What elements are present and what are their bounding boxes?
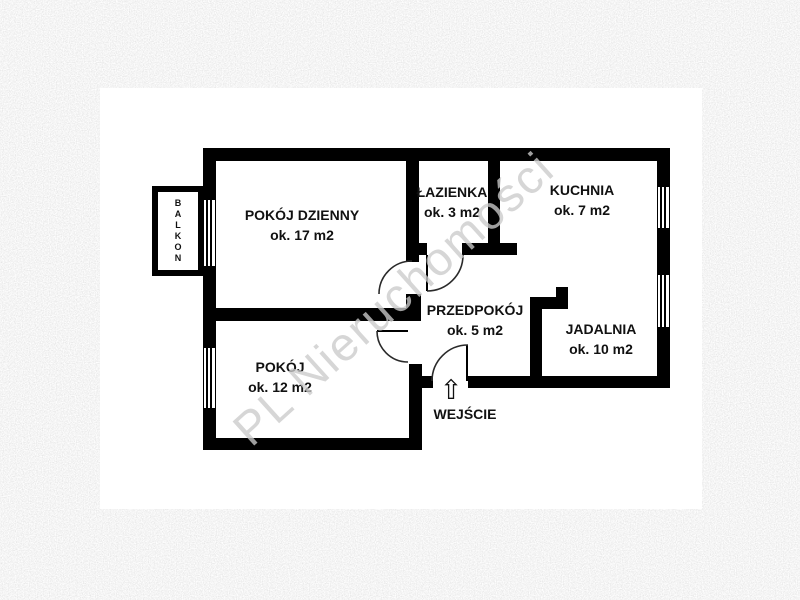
wall	[203, 148, 670, 161]
door-leaf-room	[377, 330, 408, 332]
window-symbol-dining	[658, 275, 669, 327]
wall	[203, 438, 422, 450]
door-leaf-entrance	[466, 345, 468, 381]
room-name: POKÓJ	[248, 358, 312, 377]
room-area: ok. 10 m2	[566, 340, 637, 359]
wall	[409, 364, 422, 450]
entrance-label: WEJŚCIE	[433, 406, 496, 422]
room-area: ok. 3 m2	[417, 203, 488, 222]
wall	[530, 297, 568, 309]
room-area: ok. 12 m2	[248, 378, 312, 397]
door-leaf-bathroom	[426, 255, 428, 291]
wall	[203, 308, 410, 321]
balcony-outline: BALKON	[152, 186, 204, 276]
wall	[488, 161, 500, 243]
wall	[468, 376, 670, 388]
room-name: POKÓJ DZIENNY	[245, 206, 359, 225]
room-label-living-room: POKÓJ DZIENNY ok. 17 m2	[245, 206, 359, 245]
wall	[530, 297, 542, 388]
window-symbol-balcony-door	[204, 200, 215, 266]
room-name: KUCHNIA	[550, 181, 615, 200]
room-label-kitchen: KUCHNIA ok. 7 m2	[550, 181, 615, 220]
room-name: ŁAZIENKA	[417, 183, 488, 202]
wall	[406, 243, 427, 255]
wall	[421, 376, 433, 388]
wall	[462, 243, 517, 255]
room-area: ok. 7 m2	[550, 201, 615, 220]
entrance-arrow-icon: ⇧	[440, 376, 463, 404]
window-symbol-kitchen	[658, 187, 669, 228]
wall	[406, 294, 421, 321]
room-label-bathroom: ŁAZIENKA ok. 3 m2	[417, 183, 488, 222]
wall	[556, 287, 568, 297]
room-label-dining: JADALNIA ok. 10 m2	[566, 320, 637, 359]
room-name: PRZEDPOKÓJ	[427, 301, 523, 320]
room-area: ok. 17 m2	[245, 226, 359, 245]
window-symbol-room	[204, 348, 215, 408]
room-label-hallway: PRZEDPOKÓJ ok. 5 m2	[427, 301, 523, 340]
floorplan-page: BALKON POKÓJ DZIENNY ok. 17 m2 ŁAZIENKA …	[0, 0, 800, 600]
room-name: JADALNIA	[566, 320, 637, 339]
room-area: ok. 5 m2	[427, 321, 523, 340]
wall	[657, 148, 670, 388]
balcony-label: BALKON	[174, 198, 183, 264]
room-label-room: POKÓJ ok. 12 m2	[248, 358, 312, 397]
